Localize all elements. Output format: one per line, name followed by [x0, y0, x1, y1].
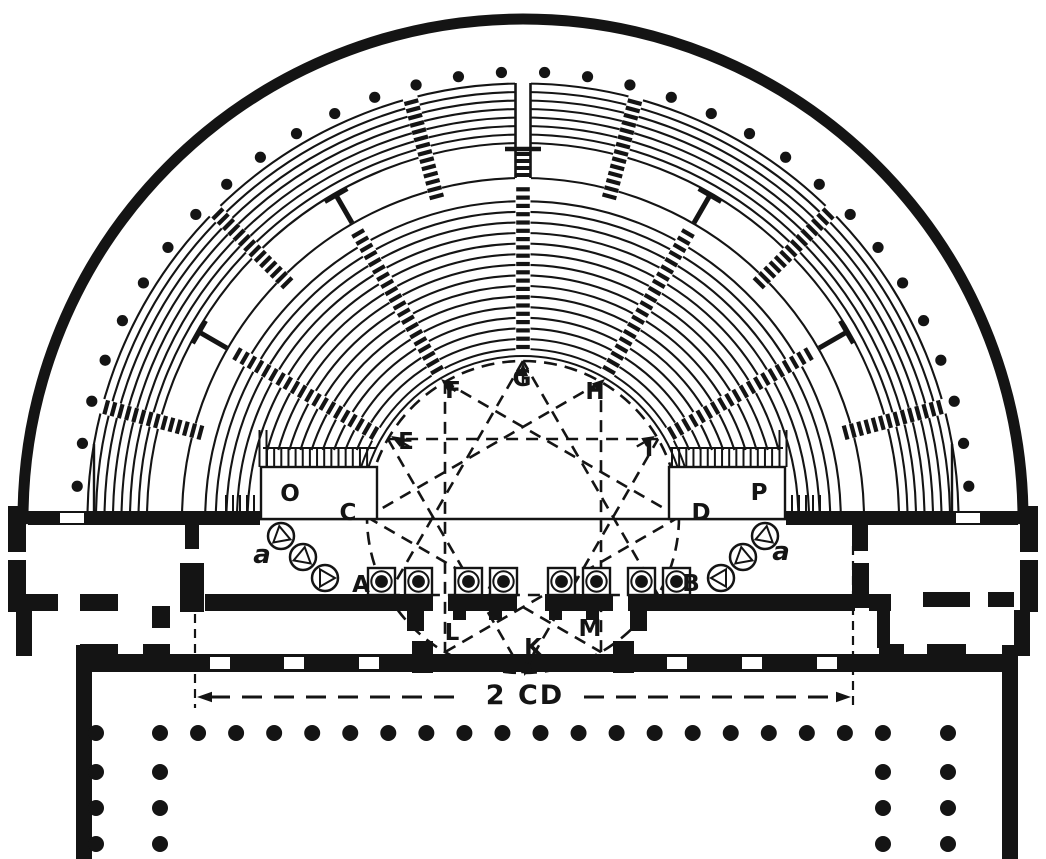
door-opening: [210, 657, 230, 669]
colonnade-column: [138, 277, 149, 288]
label-G: G: [513, 366, 532, 392]
wall: [1020, 560, 1038, 612]
wall: [489, 611, 502, 620]
colonnade-column: [255, 152, 266, 163]
wall: [927, 644, 966, 655]
wall: [628, 594, 855, 611]
wall: [143, 644, 170, 655]
colonnade-column: [221, 179, 232, 190]
colonnade-column: [410, 79, 421, 90]
porticus-column: [380, 725, 396, 741]
wall: [76, 645, 92, 859]
basilica-columns: [268, 523, 778, 591]
dimension-label: 2 CD: [486, 680, 564, 711]
colonnade-column: [744, 128, 755, 139]
porticus-column: [875, 764, 891, 780]
porticus-column: [799, 725, 815, 741]
porticus-column: [88, 836, 104, 852]
porticus-column: [88, 725, 104, 741]
porticus-column: [837, 725, 853, 741]
wall: [152, 606, 170, 628]
wall: [877, 610, 890, 648]
wall: [185, 525, 199, 549]
colonnade-column: [582, 71, 593, 82]
door-opening: [667, 657, 687, 669]
label-C: C: [340, 500, 357, 526]
colonnade-column: [949, 396, 960, 407]
colonnade-column: [100, 355, 111, 366]
colonnade-column: [496, 67, 507, 78]
colonnade-column: [624, 79, 635, 90]
colonnade-column: [291, 128, 302, 139]
label-M: M: [579, 616, 602, 642]
porticus-column: [88, 764, 104, 780]
wall: [453, 611, 466, 620]
colonnade-column: [780, 152, 791, 163]
porticus-column: [940, 800, 956, 816]
porticus-column: [940, 836, 956, 852]
porticus-column: [940, 725, 956, 741]
label-E: E: [398, 429, 414, 455]
wall: [786, 511, 1018, 525]
wall: [852, 525, 868, 551]
wall: [18, 594, 58, 611]
door-opening: [1020, 552, 1038, 560]
porticus-column: [418, 725, 434, 741]
column-plinth-core: [590, 575, 603, 588]
label-A: A: [352, 572, 370, 598]
column-plinth-core: [497, 575, 510, 588]
colonnade-column: [872, 242, 883, 253]
colonnade-column: [190, 209, 201, 220]
balteus-wall: [694, 195, 710, 223]
wall: [988, 592, 1014, 607]
roman-theatre-plan: A B C D E F G H I K L M O P a a 2 CD: [0, 0, 1046, 859]
balteus-wall: [336, 195, 352, 223]
wall: [923, 592, 970, 607]
colonnade-column: [453, 71, 464, 82]
wall: [879, 644, 904, 655]
door-opening: [956, 513, 980, 523]
colonnade-column: [935, 355, 946, 366]
door-opening: [284, 657, 304, 669]
label-H: H: [585, 379, 604, 405]
porticus-column: [647, 725, 663, 741]
colonnade-column: [845, 209, 856, 220]
porticus-column: [190, 725, 206, 741]
wall: [630, 611, 647, 631]
colonnade-column: [539, 67, 550, 78]
porticus-column: [761, 725, 777, 741]
porticus-column: [304, 725, 320, 741]
wall: [180, 563, 204, 612]
door-opening: [359, 657, 379, 669]
colonnade-column: [72, 481, 83, 492]
label-F: F: [445, 378, 461, 404]
label-L: L: [445, 620, 460, 646]
column-plinth-core: [635, 575, 648, 588]
wall: [869, 594, 891, 611]
porticus-column: [266, 725, 282, 741]
column-plinth-core: [412, 575, 425, 588]
colonnade-column: [329, 108, 340, 119]
colonnade-column: [369, 92, 380, 103]
porticus-column: [152, 764, 168, 780]
tribunal-box-P: [669, 467, 785, 519]
porticus-column: [152, 836, 168, 852]
colonnade-column: [897, 277, 908, 288]
door-opening: [60, 513, 84, 523]
colonnade-column: [706, 108, 717, 119]
label-a-left: a: [253, 540, 271, 570]
porticus-column: [228, 725, 244, 741]
dimension-arrowhead: [836, 692, 851, 702]
colonnade-column: [814, 179, 825, 190]
porticus-column: [571, 725, 587, 741]
label-D: D: [691, 500, 710, 526]
porticus-column: [723, 725, 739, 741]
dimension-arrowhead: [197, 692, 212, 702]
colonnade-column: [117, 315, 128, 326]
porticus-column: [875, 800, 891, 816]
label-B: B: [682, 571, 700, 597]
colonnade-column: [666, 92, 677, 103]
wall: [205, 594, 433, 611]
door-opening: [742, 657, 762, 669]
label-K: K: [524, 635, 543, 661]
column-plinth-core: [555, 575, 568, 588]
porticus-column: [875, 836, 891, 852]
porticus-column: [88, 800, 104, 816]
porticus-column: [609, 725, 625, 741]
porticus-column: [685, 725, 701, 741]
colonnade-column: [963, 481, 974, 492]
porticus-column: [152, 725, 168, 741]
balteus-wall: [199, 332, 227, 348]
porticus-column: [875, 725, 891, 741]
label-a-right: a: [772, 537, 790, 567]
porticus-column: [456, 725, 472, 741]
wall: [545, 594, 613, 611]
figure-canvas: A B C D E F G H I K L M O P a a 2 CD: [0, 0, 1046, 859]
door-opening: [817, 657, 837, 669]
balteus-wall: [819, 332, 847, 348]
door-opening: [8, 552, 26, 560]
porticus-column: [494, 725, 510, 741]
porticus-column: [152, 800, 168, 816]
wall: [448, 594, 517, 611]
wall: [80, 594, 118, 611]
label-O: O: [280, 481, 300, 507]
colonnade-column: [958, 438, 969, 449]
column-plinth-core: [375, 575, 388, 588]
colonnade-column: [162, 242, 173, 253]
porticus-column: [940, 764, 956, 780]
wall: [16, 610, 32, 656]
wall: [1002, 645, 1018, 859]
porticus-column: [533, 725, 549, 741]
column-plinth-core: [670, 575, 683, 588]
porticus-column: [342, 725, 358, 741]
wall: [407, 611, 424, 631]
colonnade-column: [918, 315, 929, 326]
colonnade-column: [77, 438, 88, 449]
tribunal-box-O: [261, 467, 377, 519]
label-P: P: [751, 480, 768, 506]
column-plinth-core: [462, 575, 475, 588]
label-I: I: [645, 436, 654, 462]
wall: [549, 611, 562, 620]
colonnade-column: [86, 396, 97, 407]
